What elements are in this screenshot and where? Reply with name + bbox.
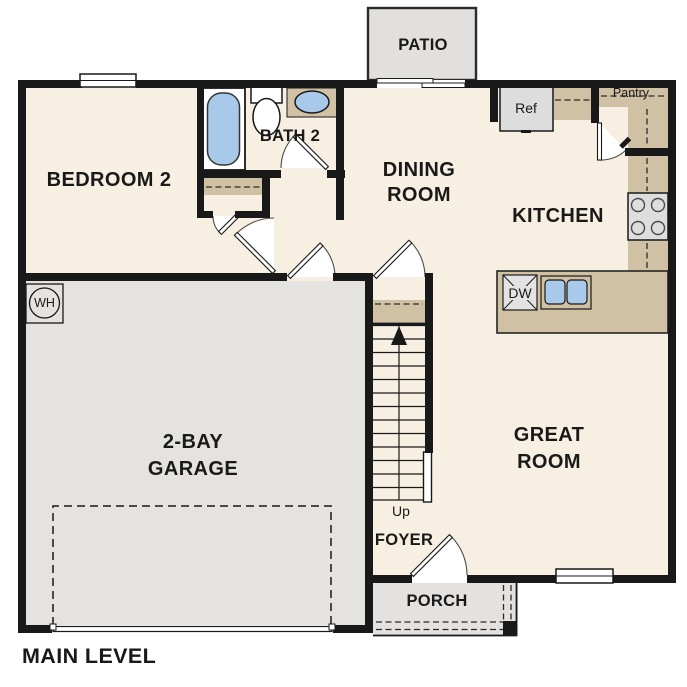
garage-label-line1: 2-BAY [163,431,223,453]
bedroom2-closet-shelf [204,178,262,195]
dining-room-label-line1: DINING [383,159,455,181]
dishwasher-label: DW [508,285,532,301]
bedroom2-label: BEDROOM 2 [47,169,172,191]
foyer-label: FOYER [375,531,433,549]
stair-closet-shelf [373,300,425,325]
kitchen-label: KITCHEN [512,205,604,227]
bath2-label: BATH 2 [260,127,320,145]
garage-label-line2: GARAGE [148,458,238,480]
great-room-window [556,569,613,583]
bathtub [202,88,245,170]
floor-plan: PATIO BEDROOM 2 BATH 2 DINING ROOM KITCH… [0,0,687,687]
patio-label: PATIO [398,36,447,54]
porch-post [503,621,517,635]
pantry-label: Pantry [613,86,650,100]
porch-label: PORCH [406,592,467,610]
great-room-label-line1: GREAT [514,424,585,446]
water-heater-label: WH [34,296,55,310]
garage-door [50,624,335,633]
bedroom2-window [80,74,136,87]
up-label: Up [392,503,410,519]
floor-plan-canvas: PATIO BEDROOM 2 BATH 2 DINING ROOM KITCH… [0,0,687,687]
refrigerator-label: Ref [515,100,537,116]
stair-railing [424,452,432,502]
main-level-title: MAIN LEVEL [22,644,156,668]
stove [628,193,668,240]
great-room-label-line2: ROOM [517,451,581,473]
garage-floor [18,273,373,633]
kitchen-sink [541,276,591,309]
vanity-sink [287,88,337,117]
fridge-nook-counter [553,84,593,120]
dining-room-label-line2: ROOM [387,184,451,206]
